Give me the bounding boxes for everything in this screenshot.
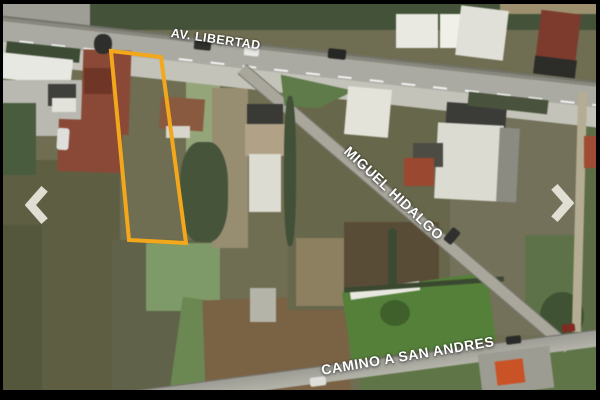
white-building [344, 86, 392, 138]
white-building [396, 14, 438, 48]
car [328, 48, 347, 60]
car [310, 376, 327, 387]
orange-roof [495, 358, 526, 385]
tree-row [284, 96, 296, 246]
lawn-trees [380, 300, 410, 326]
water-tanks [94, 34, 112, 54]
white-roof-large [455, 5, 509, 60]
previous-photo-button[interactable] [25, 186, 49, 224]
white-structures [249, 154, 281, 212]
dark-roof [247, 104, 283, 126]
red-roof [84, 68, 112, 94]
white-roof [52, 98, 76, 112]
chevron-right-icon [550, 184, 574, 222]
parked-car [56, 128, 70, 151]
chevron-left-icon [25, 186, 49, 224]
concrete-pad [250, 288, 276, 322]
listing-photo-frame: AV. LIBERTAD MIGUEL HIDALGO CAMINO A SAN… [0, 0, 600, 400]
hedge [0, 103, 36, 175]
terrain-layer [0, 0, 600, 400]
letterbox-top [0, 0, 600, 4]
white-roof [166, 126, 190, 138]
red-roof-house [404, 158, 434, 186]
field-patch [0, 225, 42, 395]
next-photo-button[interactable] [550, 184, 574, 222]
bushes [180, 142, 228, 242]
letterbox-bottom [0, 390, 600, 400]
satellite-photo: AV. LIBERTAD MIGUEL HIDALGO CAMINO A SAN… [0, 0, 600, 400]
gray-wall [496, 128, 520, 203]
white-yard [434, 122, 504, 201]
car [562, 323, 576, 333]
field-patch [296, 238, 348, 306]
letterbox-right [596, 0, 600, 400]
yard [245, 124, 287, 156]
letterbox-left [0, 0, 3, 400]
